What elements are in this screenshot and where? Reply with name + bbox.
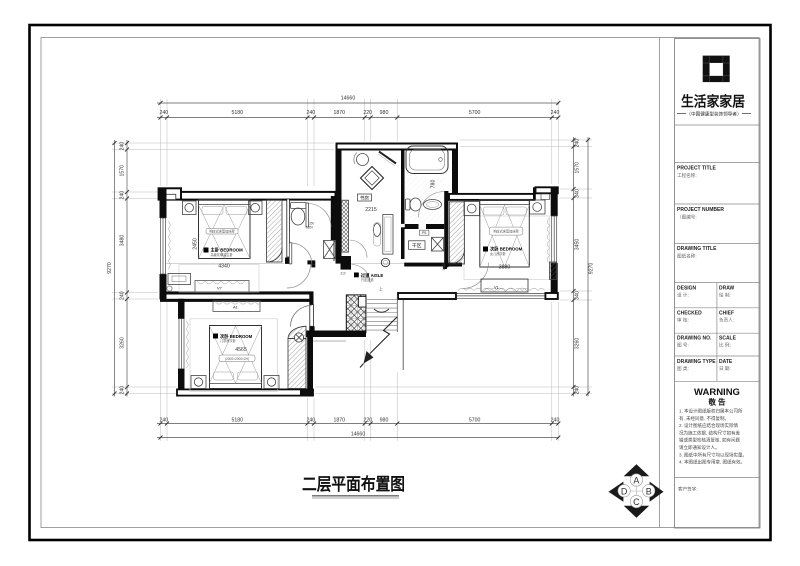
svg-text:请立即通知设计人。: 请立即通知设计人。 bbox=[679, 444, 720, 451]
svg-text:DRAWING TITLE: DRAWING TITLE bbox=[677, 246, 717, 252]
svg-text:DATE: DATE bbox=[719, 359, 733, 365]
svg-text:上: 上 bbox=[379, 286, 383, 292]
svg-text:A1: A1 bbox=[233, 305, 239, 310]
svg-text:设 计:: 设 计: bbox=[677, 292, 689, 299]
svg-text:客户签字:: 客户签字: bbox=[678, 486, 698, 493]
svg-text:5180: 5180 bbox=[232, 110, 244, 116]
svg-text:3260: 3260 bbox=[575, 338, 581, 350]
svg-text:1570: 1570 bbox=[575, 162, 581, 174]
svg-text:P5: P5 bbox=[422, 231, 426, 235]
svg-text:240: 240 bbox=[159, 418, 168, 424]
svg-text:240: 240 bbox=[575, 139, 581, 148]
svg-text:D: D bbox=[621, 486, 628, 496]
svg-text:240: 240 bbox=[120, 191, 126, 200]
svg-text:负责人:: 负责人: bbox=[719, 317, 734, 324]
svg-text:240: 240 bbox=[551, 418, 560, 424]
svg-text:V1: V1 bbox=[494, 285, 500, 290]
svg-text:女儿房次卧: 女儿房次卧 bbox=[490, 251, 507, 256]
svg-text:DESIGN: DESIGN bbox=[677, 286, 697, 292]
svg-text:高级灰硬装主卧: 高级灰硬装主卧 bbox=[211, 252, 234, 257]
svg-text:240: 240 bbox=[306, 418, 315, 424]
svg-text:780: 780 bbox=[431, 180, 437, 189]
svg-text:CHECKED: CHECKED bbox=[677, 311, 702, 317]
svg-text:响应式床垫加床架: 响应式床垫加床架 bbox=[493, 229, 519, 234]
svg-text:PROJECT TITLE: PROJECT TITLE bbox=[677, 166, 717, 172]
svg-text:况为施工依据, 结构尺寸如有差: 况为施工依据, 结构尺寸如有差 bbox=[679, 429, 740, 436]
svg-text:240: 240 bbox=[306, 110, 315, 116]
svg-text:(2000×2000×2H): (2000×2000×2H) bbox=[225, 357, 249, 361]
svg-text:行走通道: 行走通道 bbox=[361, 277, 375, 282]
svg-text:DRAW: DRAW bbox=[719, 286, 735, 292]
svg-text:SCALE: SCALE bbox=[719, 336, 737, 342]
svg-text:工程名称:: 工程名称: bbox=[677, 172, 697, 179]
svg-text:响应式床垫加床架: 响应式床垫加床架 bbox=[209, 228, 235, 233]
svg-text:DRAWING TYPE: DRAWING TYPE bbox=[677, 359, 716, 365]
svg-text:DRAWING NO.: DRAWING NO. bbox=[677, 336, 712, 342]
svg-text:14660: 14660 bbox=[341, 96, 356, 102]
svg-text:220: 220 bbox=[363, 110, 372, 116]
svg-text:9270: 9270 bbox=[107, 262, 113, 274]
svg-text:2215: 2215 bbox=[365, 207, 377, 213]
svg-text:生活家家居: 生活家家居 bbox=[681, 94, 745, 110]
svg-text:错或类型校核清复核, 如有问题: 错或类型校核清复核, 如有问题 bbox=[679, 437, 740, 444]
svg-text:（图编号:: （图编号: bbox=[677, 214, 697, 221]
svg-text:1870: 1870 bbox=[334, 110, 346, 116]
svg-text:240: 240 bbox=[120, 142, 126, 151]
svg-text:4565: 4565 bbox=[235, 347, 247, 353]
svg-text:1870: 1870 bbox=[334, 418, 346, 424]
svg-text:WARNING: WARNING bbox=[694, 387, 740, 398]
svg-text:1570: 1570 bbox=[120, 165, 126, 177]
svg-text:340: 340 bbox=[575, 291, 581, 300]
svg-text:220: 220 bbox=[363, 418, 372, 424]
svg-text:4. 本图纸出图专用章, 图纸有效。: 4. 本图纸出图专用章, 图纸有效。 bbox=[679, 459, 745, 466]
svg-text:C: C bbox=[633, 497, 640, 507]
svg-text:干区: 干区 bbox=[412, 243, 422, 249]
svg-text:B: B bbox=[646, 486, 652, 496]
svg-text:2. 设计图纸应结合现场实际情: 2. 设计图纸应结合现场实际情 bbox=[679, 422, 739, 429]
svg-text:A: A bbox=[633, 476, 639, 486]
svg-text:240: 240 bbox=[120, 386, 126, 395]
svg-text:4340: 4340 bbox=[218, 264, 230, 270]
svg-text:CHIEF: CHIEF bbox=[719, 311, 734, 317]
svg-text:240: 240 bbox=[575, 386, 581, 395]
svg-text:2450: 2450 bbox=[193, 238, 199, 250]
svg-text:图 类:: 图 类: bbox=[677, 365, 689, 372]
svg-text:3480: 3480 bbox=[120, 235, 126, 247]
svg-text:书房: 书房 bbox=[360, 194, 370, 201]
svg-text:9270: 9270 bbox=[589, 263, 595, 275]
svg-text:1. 本设计图纸版权归属本公司所: 1. 本设计图纸版权归属本公司所 bbox=[679, 408, 743, 415]
svg-text:1600: 1600 bbox=[442, 263, 446, 270]
svg-text:有, 未经同意, 不得复制。: 有, 未经同意, 不得复制。 bbox=[679, 415, 729, 422]
svg-text:V7: V7 bbox=[217, 286, 223, 291]
svg-text:比 例:: 比 例: bbox=[719, 342, 731, 349]
svg-text:340: 340 bbox=[575, 189, 581, 198]
svg-text:5180: 5180 bbox=[232, 418, 244, 424]
svg-text:3. 图纸中所有尺寸均以现场实量。: 3. 图纸中所有尺寸均以现场实量。 bbox=[679, 451, 747, 458]
svg-text:5700: 5700 bbox=[469, 110, 481, 116]
svg-text:图纸名称:: 图纸名称: bbox=[677, 253, 697, 260]
svg-text:绘 制:: 绘 制: bbox=[719, 292, 731, 299]
svg-text:3880: 3880 bbox=[499, 265, 511, 271]
svg-text:审 核:: 审 核: bbox=[677, 317, 689, 324]
svg-text:3450: 3450 bbox=[575, 239, 581, 251]
svg-text:敬 告: 敬 告 bbox=[707, 397, 726, 407]
svg-text:5700: 5700 bbox=[469, 418, 481, 424]
svg-text:240: 240 bbox=[159, 110, 168, 116]
svg-text:3260: 3260 bbox=[120, 337, 126, 349]
svg-text:240: 240 bbox=[551, 110, 560, 116]
svg-text:240: 240 bbox=[120, 291, 126, 300]
svg-text:PROJECT NUMBER: PROJECT NUMBER bbox=[677, 207, 724, 213]
svg-text:980: 980 bbox=[380, 418, 389, 424]
svg-text:（中国健康型装饰领导者）: （中国健康型装饰领导者） bbox=[686, 111, 741, 118]
svg-text:1350: 1350 bbox=[306, 226, 313, 230]
svg-text:310: 310 bbox=[340, 272, 346, 276]
svg-text:儿童房次卧: 儿童房次卧 bbox=[220, 338, 237, 343]
svg-text:14660: 14660 bbox=[351, 432, 366, 438]
svg-text:二层平面布置图: 二层平面布置图 bbox=[302, 474, 405, 494]
svg-text:980: 980 bbox=[380, 110, 389, 116]
